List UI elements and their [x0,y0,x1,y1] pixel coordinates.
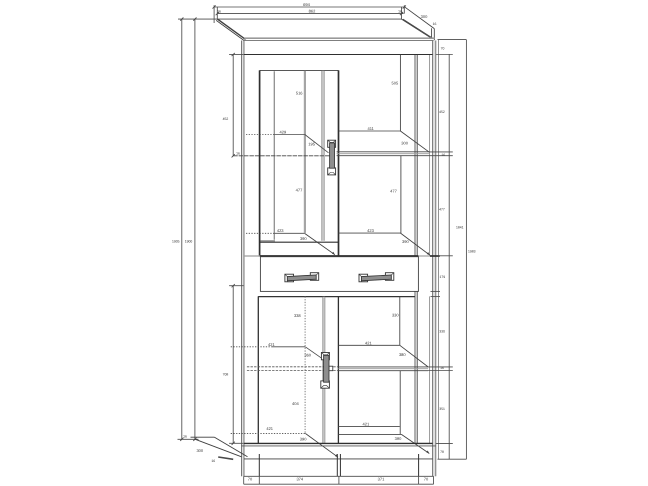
svg-text:411: 411 [368,126,375,131]
svg-text:429: 429 [280,129,287,134]
svg-text:195: 195 [308,142,315,147]
svg-text:862: 862 [309,9,316,14]
svg-text:371: 371 [378,477,385,482]
svg-text:421: 421 [365,341,372,346]
svg-text:477: 477 [296,187,303,192]
svg-text:421: 421 [268,342,275,347]
svg-text:694: 694 [303,2,310,7]
svg-text:1900: 1900 [185,239,193,243]
svg-text:516: 516 [296,91,303,96]
svg-text:16: 16 [433,22,437,26]
svg-text:423: 423 [277,228,284,233]
svg-text:330: 330 [439,330,445,334]
svg-text:330: 330 [392,313,399,318]
svg-text:338: 338 [294,313,301,318]
svg-text:423: 423 [367,228,374,233]
svg-text:70: 70 [248,477,253,482]
svg-text:477: 477 [390,189,397,194]
svg-text:300: 300 [196,448,203,453]
svg-text:351: 351 [439,407,445,411]
svg-text:70: 70 [441,46,445,50]
svg-text:380: 380 [399,352,406,357]
svg-text:421: 421 [363,422,370,427]
svg-text:374: 374 [296,477,303,482]
svg-text:300: 300 [401,141,408,146]
svg-text:421: 421 [266,426,273,431]
svg-text:16: 16 [440,366,444,370]
svg-text:404: 404 [292,401,299,406]
svg-text:16: 16 [236,152,240,156]
svg-text:390: 390 [395,436,402,441]
svg-text:78: 78 [440,450,444,454]
svg-text:1841: 1841 [456,226,464,230]
svg-text:70: 70 [424,477,429,482]
svg-text:360: 360 [304,353,311,358]
svg-text:477: 477 [439,208,445,212]
svg-text:505: 505 [392,81,399,86]
svg-text:179: 179 [439,275,445,279]
svg-text:16: 16 [211,459,215,463]
svg-text:390: 390 [402,239,409,244]
svg-text:390: 390 [300,236,307,241]
svg-text:16: 16 [398,9,402,13]
svg-text:1983: 1983 [468,249,476,253]
svg-text:16: 16 [441,153,445,157]
svg-text:1905: 1905 [172,239,180,243]
svg-text:300: 300 [421,14,428,19]
svg-text:452: 452 [439,110,445,114]
svg-text:708: 708 [223,373,229,377]
svg-text:390: 390 [300,437,307,442]
svg-text:452: 452 [223,117,229,121]
